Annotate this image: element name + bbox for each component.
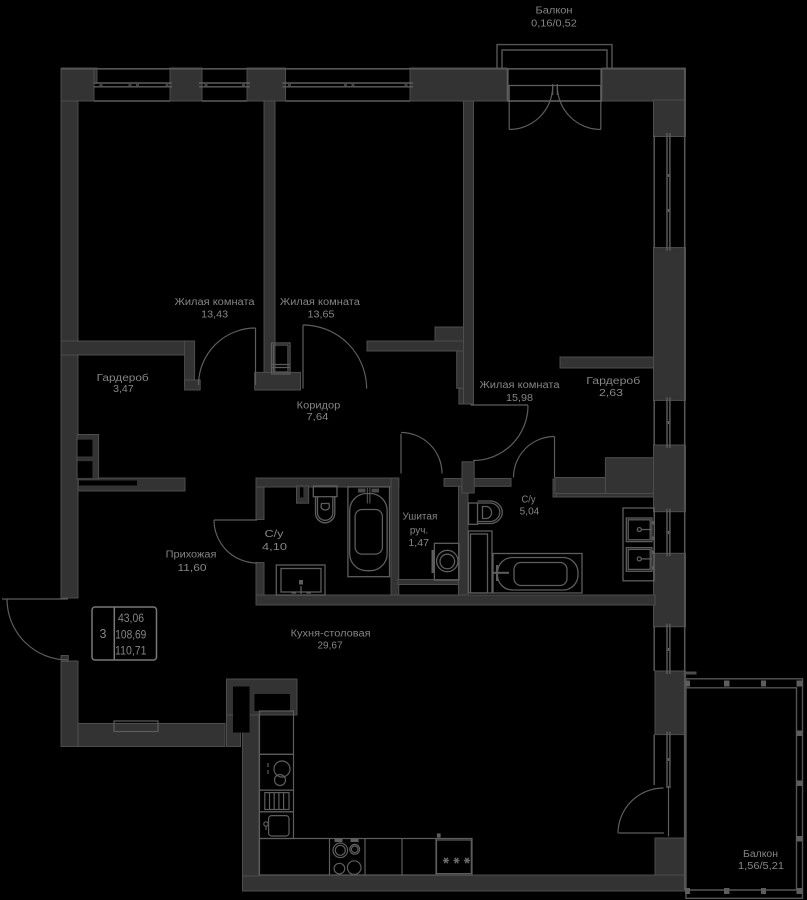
svg-text:110,71: 110,71 <box>115 644 147 658</box>
svg-text:5,04: 5,04 <box>520 507 540 518</box>
svg-text:11,60: 11,60 <box>178 563 208 574</box>
svg-text:Жилая комната: Жилая комната <box>280 297 361 308</box>
svg-text:3: 3 <box>100 627 107 641</box>
svg-text:29,67: 29,67 <box>318 641 343 652</box>
svg-text:Коридор: Коридор <box>297 401 341 412</box>
svg-text:2,63: 2,63 <box>599 388 623 399</box>
svg-text:руч.: руч. <box>410 526 428 537</box>
svg-text:Кухня-столовая: Кухня-столовая <box>291 629 371 640</box>
svg-text:С/у: С/у <box>265 529 284 540</box>
svg-text:15,98: 15,98 <box>506 393 533 404</box>
svg-text:4,10: 4,10 <box>262 542 288 553</box>
svg-text:13,43: 13,43 <box>201 310 228 321</box>
svg-text:Ушитая: Ушитая <box>402 512 437 523</box>
svg-text:43,06: 43,06 <box>118 611 144 625</box>
svg-text:1,47: 1,47 <box>408 538 429 549</box>
svg-text:Балкон: Балкон <box>536 6 573 17</box>
svg-text:1,56/5,21: 1,56/5,21 <box>738 861 784 872</box>
svg-text:Балкон: Балкон <box>743 849 778 860</box>
svg-text:Гардероб: Гардероб <box>586 376 641 387</box>
svg-text:Прихожая: Прихожая <box>166 550 217 561</box>
svg-text:0,16/0,52: 0,16/0,52 <box>531 19 577 30</box>
svg-text:3,47: 3,47 <box>113 384 134 395</box>
svg-text:Жилая комната: Жилая комната <box>480 380 561 391</box>
svg-text:108,69: 108,69 <box>115 628 146 642</box>
svg-text:7,64: 7,64 <box>306 412 329 423</box>
svg-text:13,65: 13,65 <box>308 310 335 321</box>
svg-text:С/у: С/у <box>522 495 536 506</box>
svg-text:Гардероб: Гардероб <box>97 373 150 384</box>
svg-text:Жилая комната: Жилая комната <box>175 297 256 308</box>
